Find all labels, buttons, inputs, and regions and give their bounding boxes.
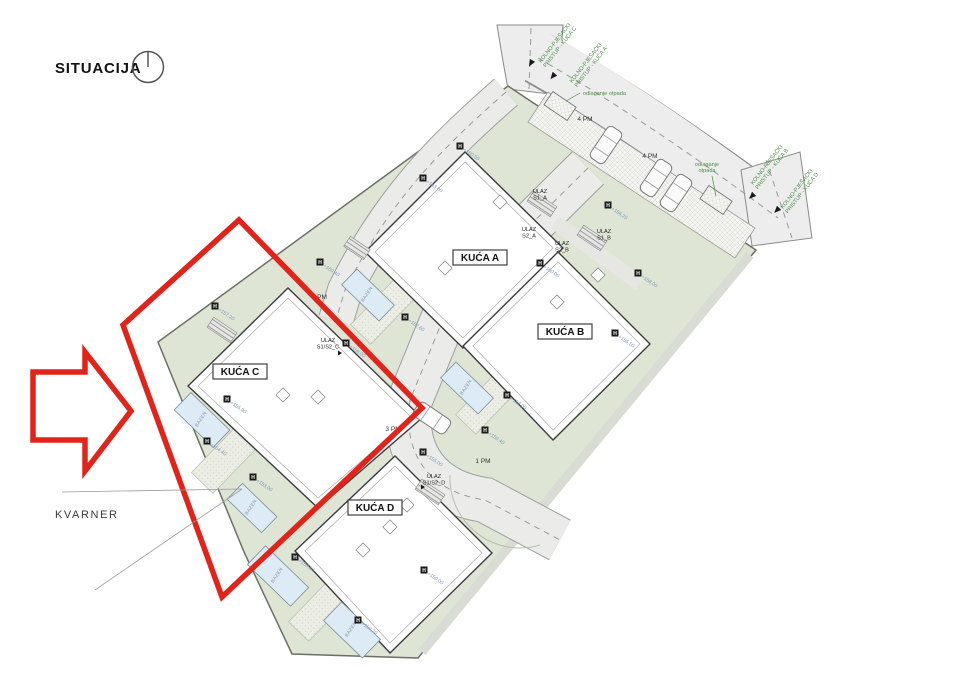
svg-text:H: H — [205, 439, 209, 445]
svg-text:odlaganje otpada: odlaganje otpada — [583, 91, 627, 97]
site-plan-drawing: BAZEN BAZEN BAZEN BAZEN BAZEN BAZEN H+16… — [0, 0, 960, 676]
parking-4pm-2: 4 PM — [642, 153, 657, 160]
house-d-label: KUĆA D — [348, 500, 402, 515]
parking-1pm: 1 PM — [475, 458, 490, 465]
location-label: KVARNER — [55, 509, 119, 521]
svg-text:H: H — [483, 428, 487, 434]
svg-text:H: H — [293, 555, 297, 561]
house-c-label: KUĆA C — [213, 364, 267, 379]
svg-text:H: H — [318, 260, 322, 266]
entrance-s1a: ULAZS1_A — [533, 189, 548, 202]
svg-text:H: H — [251, 475, 255, 481]
header: SITUACIJA — [55, 52, 164, 83]
svg-text:H: H — [613, 331, 617, 337]
highlight-arrow-icon — [33, 352, 131, 471]
svg-text:H: H — [344, 341, 348, 347]
page-title: SITUACIJA — [55, 60, 141, 77]
parking-4pm-1: 4 PM — [577, 116, 592, 123]
svg-text:H: H — [422, 568, 426, 574]
site-plan-page: BAZEN BAZEN BAZEN BAZEN BAZEN BAZEN H+16… — [0, 0, 960, 676]
house-a-label: KUĆA A — [453, 250, 507, 265]
entrance-s1b: ULAZS1_B — [597, 229, 612, 242]
svg-text:KUĆA B: KUĆA B — [546, 325, 585, 338]
svg-text:KUĆA C: KUĆA C — [221, 365, 260, 378]
svg-text:H: H — [356, 618, 360, 624]
svg-text:KUĆA A: KUĆA A — [461, 251, 499, 264]
svg-text:H: H — [458, 144, 462, 150]
svg-text:H: H — [505, 393, 509, 399]
svg-text:odlaganjeotpada: odlaganjeotpada — [695, 162, 719, 174]
entrance-s2b: ULAZS2_B — [555, 241, 570, 254]
svg-text:H: H — [421, 450, 425, 456]
entrance-s2a: ULAZS2_A — [522, 227, 537, 240]
svg-text:H: H — [636, 271, 640, 277]
svg-text:H: H — [421, 176, 425, 182]
svg-text:H: H — [225, 397, 229, 403]
house-b-label: KUĆA B — [538, 324, 592, 339]
svg-text:H: H — [213, 304, 217, 310]
svg-text:H: H — [538, 261, 542, 267]
svg-text:H: H — [403, 315, 407, 321]
svg-text:KUĆA D: KUĆA D — [356, 501, 395, 514]
svg-text:H: H — [606, 203, 610, 209]
